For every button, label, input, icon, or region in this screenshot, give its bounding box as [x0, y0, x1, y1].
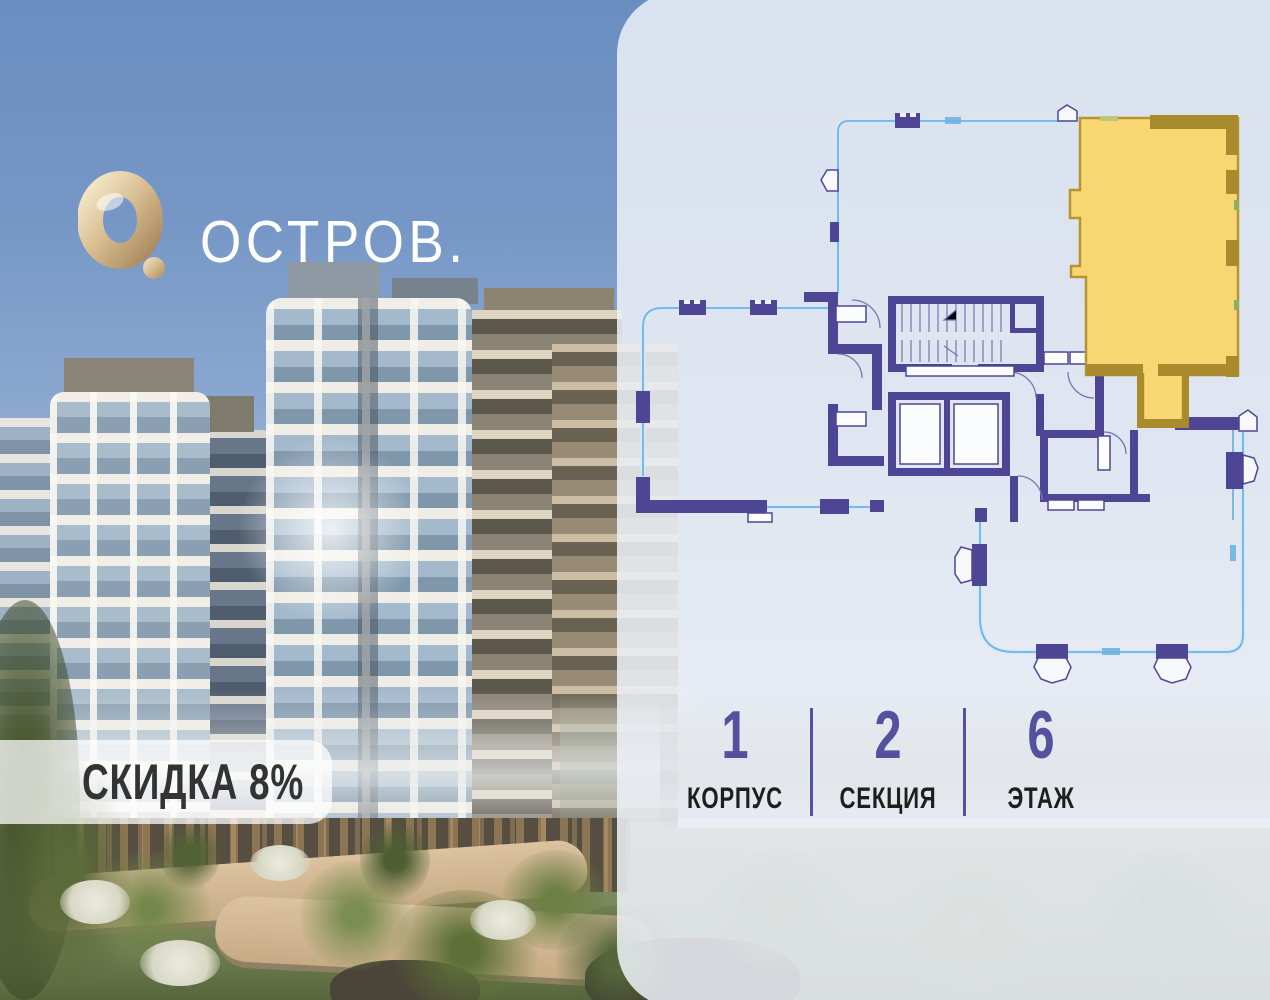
logo-ring-icon [78, 168, 178, 288]
flower-shrub [250, 845, 310, 881]
apartment-info-row: 1 КОРПУС 2 СЕКЦИЯ 6 ЭТАЖ [664, 702, 1116, 816]
etazh-value: 6 [990, 702, 1092, 768]
brand-logo: ОСТРОВ. [78, 168, 497, 288]
promo-banner: ОСТРОВ. СКИДКА 8% [0, 0, 1270, 1000]
flower-shrub [470, 900, 536, 940]
pier-vents [684, 113, 916, 304]
korpus-value: 1 [684, 702, 786, 768]
apartment-top-tick [1100, 116, 1118, 121]
flower-shrub [60, 880, 130, 924]
logo-text: ОСТРОВ. [200, 208, 468, 276]
sektsiya-value: 2 [837, 702, 939, 768]
apartment-side-tick [1234, 200, 1239, 210]
floor-plan [617, 80, 1270, 710]
tree [360, 820, 430, 900]
terrace-piers-small [830, 222, 839, 242]
apartment-side-tick [1234, 300, 1239, 310]
info-divider [810, 708, 813, 816]
info-korpus: 1 КОРПУС [664, 702, 806, 816]
tower-roof [64, 358, 194, 396]
info-divider [963, 708, 966, 816]
sektsiya-label: СЕКЦИЯ [835, 782, 940, 816]
sun-flare [230, 430, 430, 630]
tree [160, 820, 220, 890]
korpus-label: КОРПУС [682, 782, 787, 816]
discount-badge: СКИДКА 8% [0, 740, 332, 824]
info-etazh: 6 ЭТАЖ [970, 702, 1112, 816]
fixtures [748, 306, 1110, 522]
flower-shrub [140, 940, 220, 986]
stair-landing [898, 332, 1010, 338]
etazh-label: ЭТАЖ [988, 782, 1093, 816]
info-sektsiya: 2 СЕКЦИЯ [817, 702, 959, 816]
discount-text: СКИДКА 8% [82, 753, 304, 811]
tower-roof [484, 288, 614, 312]
